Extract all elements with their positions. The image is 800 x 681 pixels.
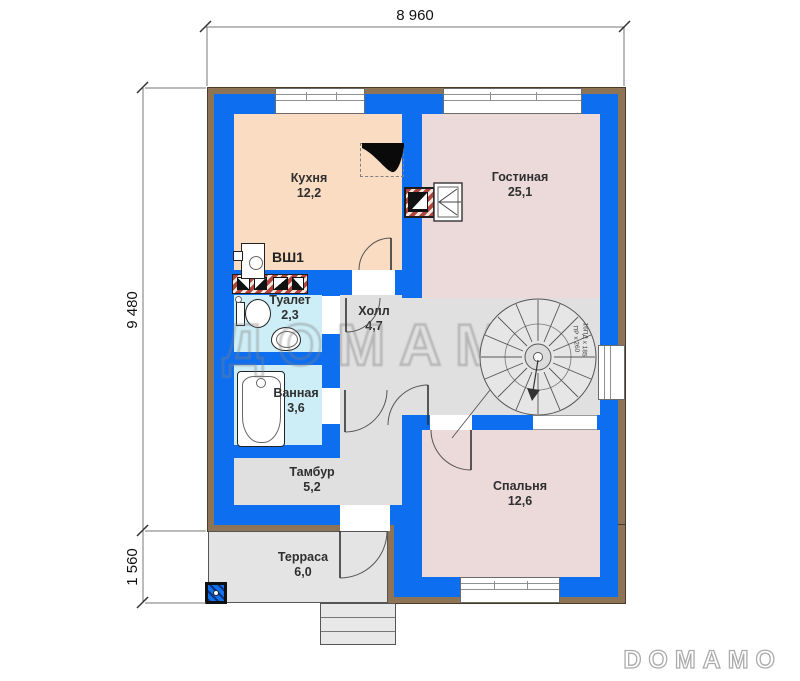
room-name: Тамбур bbox=[272, 465, 352, 480]
room-label-bathroom: Ванная 3,6 bbox=[256, 386, 336, 416]
vent-cell bbox=[292, 277, 304, 290]
sink-tap-icon bbox=[233, 251, 243, 261]
window-tick bbox=[527, 581, 528, 589]
room-area: 2,3 bbox=[250, 308, 330, 323]
dimension-width-label: 8 960 bbox=[365, 6, 465, 26]
window-sill bbox=[276, 94, 364, 101]
bedroom-window bbox=[460, 577, 560, 603]
dimension-height-label: 9 480 bbox=[123, 275, 143, 345]
window-tick bbox=[536, 92, 537, 100]
step-line bbox=[321, 604, 395, 618]
column-icon bbox=[205, 582, 227, 604]
room-area: 25,1 bbox=[475, 185, 565, 200]
vent-cell bbox=[273, 277, 288, 290]
dimension-terrace-label: 1 560 bbox=[123, 532, 143, 602]
watermark-corner: DOMAMO bbox=[623, 646, 782, 675]
room-label-toilet: Туалет 2,3 bbox=[250, 293, 330, 323]
kitchen-corner-unit bbox=[360, 143, 404, 177]
stair-landing-opening bbox=[533, 415, 597, 430]
room-label-living: Гостиная 25,1 bbox=[475, 170, 565, 200]
stair-window bbox=[598, 345, 625, 400]
washbasin-bowl bbox=[276, 331, 298, 348]
window-tick bbox=[494, 581, 495, 589]
living-window bbox=[443, 88, 582, 114]
room-label-vestibule: Тамбур 5,2 bbox=[272, 465, 352, 495]
step-line bbox=[321, 618, 395, 632]
floor-plan: Кухня 12,2 Гостиная 25,1 Туалет 2,3 Холл… bbox=[0, 0, 800, 681]
room-area: 6,0 bbox=[258, 565, 348, 580]
entrance-steps bbox=[320, 603, 396, 645]
room-name: Кухня bbox=[264, 171, 354, 186]
room-living bbox=[422, 114, 600, 298]
vent-shaft-label: ВШ1 bbox=[272, 249, 304, 265]
window-sill bbox=[604, 346, 611, 399]
window-tick bbox=[336, 92, 337, 100]
room-name: Терраса bbox=[258, 550, 348, 565]
kitchen-door-opening bbox=[352, 270, 395, 295]
room-label-terrace: Терраса 6,0 bbox=[258, 550, 348, 580]
room-name: Ванная bbox=[256, 386, 336, 401]
kitchen-window bbox=[275, 88, 365, 114]
room-label-kitchen: Кухня 12,2 bbox=[264, 171, 354, 201]
room-name: Гостиная bbox=[475, 170, 565, 185]
window-tick bbox=[490, 92, 491, 100]
room-area: 3,6 bbox=[256, 401, 336, 416]
room-name: Спальня bbox=[475, 479, 565, 494]
toilet-tank-icon bbox=[236, 302, 245, 326]
room-area: 4,7 bbox=[334, 319, 414, 334]
room-name: Туалет bbox=[250, 293, 330, 308]
vestibule-exit-opening bbox=[340, 505, 390, 531]
chimney-icon bbox=[404, 187, 435, 218]
room-area: 5,2 bbox=[272, 480, 352, 495]
window-sill bbox=[444, 94, 581, 101]
room-area: 12,2 bbox=[264, 186, 354, 201]
bedroom-door-opening bbox=[430, 415, 472, 430]
room-label-hall: Холл 4,7 bbox=[334, 304, 414, 334]
window-sill bbox=[461, 583, 559, 590]
washbasin-icon bbox=[271, 327, 301, 351]
pipe-riser-icon bbox=[235, 296, 242, 303]
window-tick bbox=[306, 92, 307, 100]
room-name: Холл bbox=[334, 304, 414, 319]
room-label-bedroom: Спальня 12,6 bbox=[475, 479, 565, 509]
corridor-stair-zone bbox=[402, 298, 600, 415]
sink-bowl-icon bbox=[249, 256, 263, 270]
column-center-dot bbox=[213, 590, 219, 596]
room-area: 12,6 bbox=[475, 494, 565, 509]
